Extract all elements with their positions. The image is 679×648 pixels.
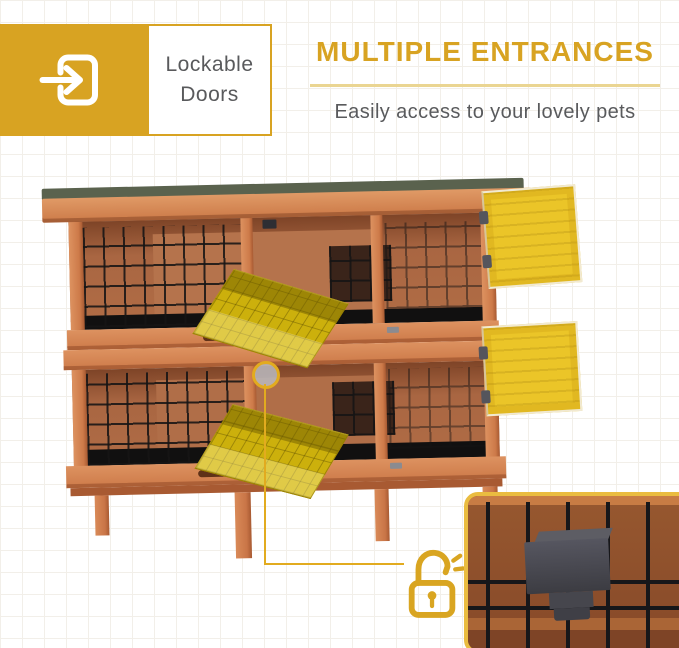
hutch-post (68, 222, 84, 330)
hutch-upper-right-mesh (384, 221, 482, 309)
door-highlight-lower (481, 321, 582, 416)
feature-badge: Lockable Doors (0, 24, 274, 136)
product-infographic-page: Lockable Doors MULTIPLE ENTRANCES Easily… (0, 0, 679, 648)
header: MULTIPLE ENTRANCES Easily access to your… (295, 36, 675, 124)
title-underline (310, 84, 660, 87)
latch-body (524, 538, 611, 594)
lock-callout-line-vertical (264, 384, 266, 564)
page-title: MULTIPLE ENTRANCES (295, 36, 675, 68)
latch-tab-end (554, 607, 591, 621)
latch-closeup-inset (464, 492, 679, 648)
lock-callout-line-horizontal (264, 563, 404, 565)
hutch-leg (235, 492, 252, 558)
unlock-padlock-icon (402, 540, 464, 622)
hutch-post (72, 370, 88, 470)
badge-label-box: Lockable Doors (147, 24, 272, 136)
enter-door-arrow-icon (35, 41, 113, 119)
lock-callout-ring (252, 361, 280, 389)
tray-latch (387, 327, 399, 333)
door-hinge (479, 211, 489, 225)
badge-icon-box (0, 24, 147, 136)
page-subtitle: Easily access to your lovely pets (295, 101, 675, 124)
badge-label: Lockable Doors (149, 50, 270, 111)
door-hinge (482, 255, 492, 269)
hutch-roof-latch (262, 219, 276, 228)
inset-metal-latch (524, 528, 619, 625)
hutch-leg (95, 495, 110, 535)
hutch-post (374, 363, 388, 463)
door-highlight-upper (481, 184, 582, 289)
hutch-lower-right-mesh (388, 367, 486, 449)
door-hinge (478, 346, 488, 359)
hutch-post (370, 215, 384, 323)
hutch-leg (375, 489, 390, 541)
tray-latch (390, 463, 402, 469)
door-hinge (481, 390, 491, 403)
